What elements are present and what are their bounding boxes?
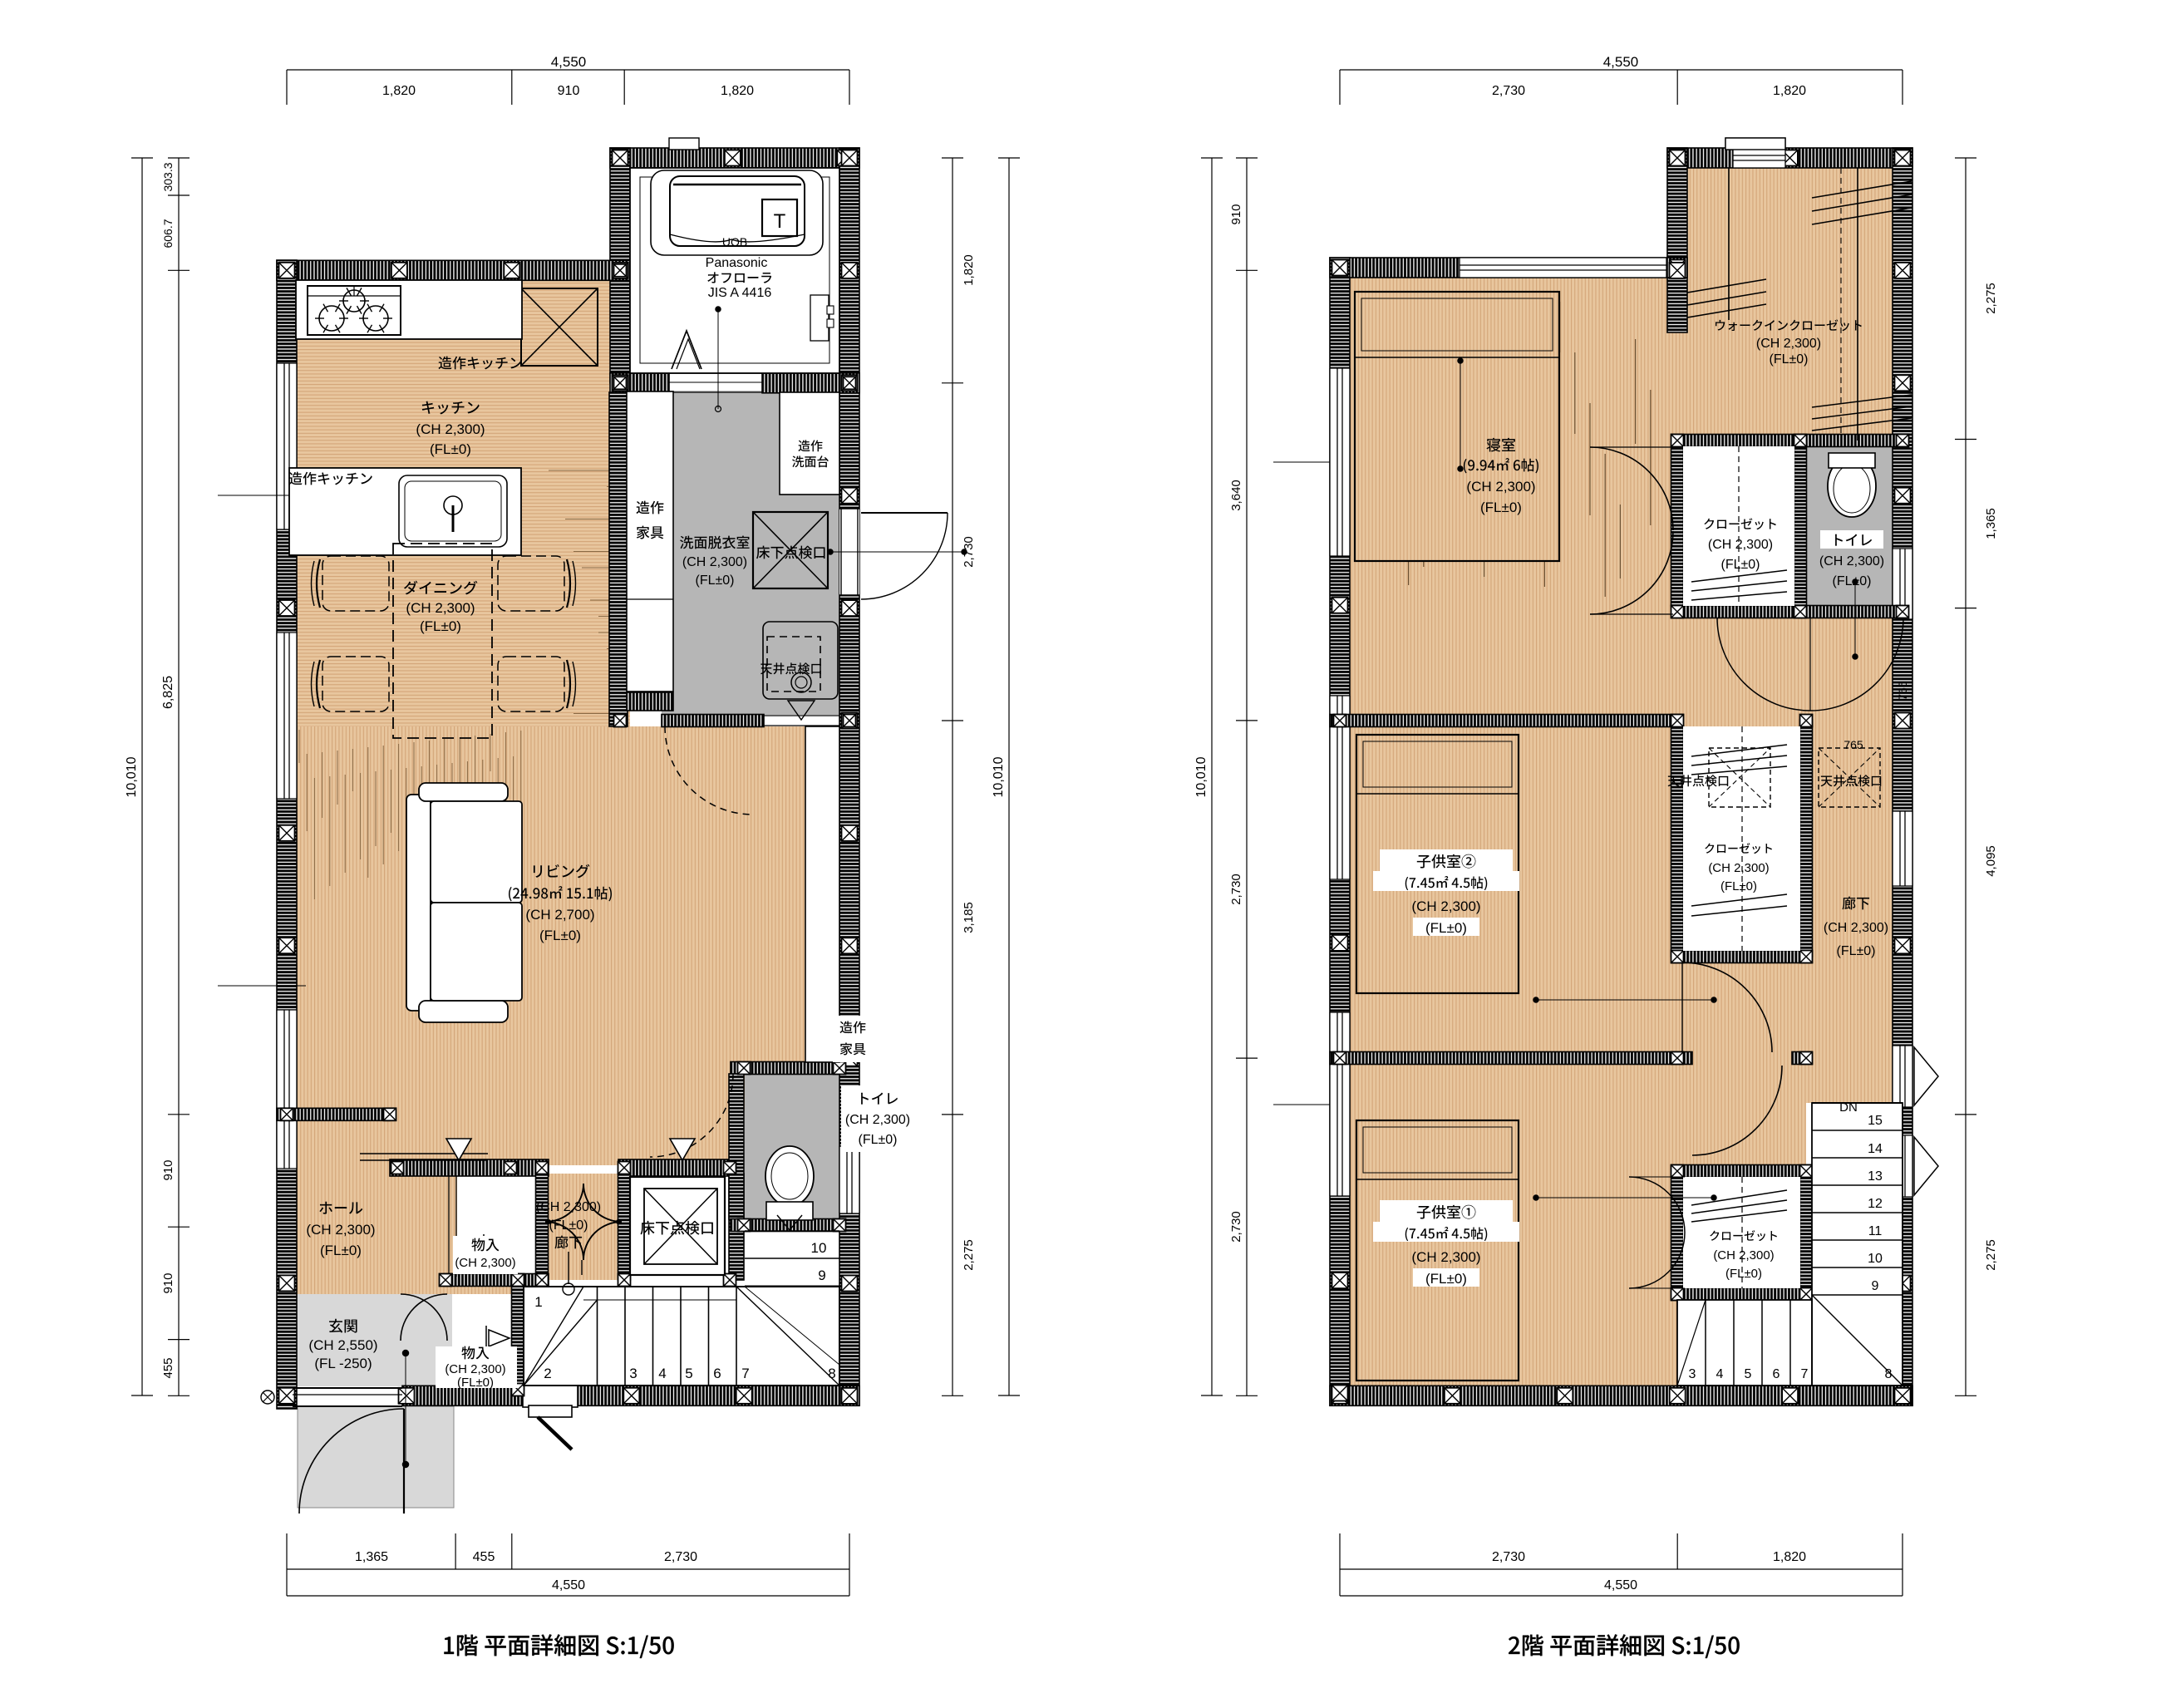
svg-text:Panasonic: Panasonic — [706, 256, 768, 270]
svg-text:(CH 2,300): (CH 2,300) — [406, 600, 475, 616]
svg-text:910: 910 — [558, 84, 580, 98]
svg-text:(FL±0): (FL±0) — [858, 1133, 897, 1147]
svg-text:(FL±0): (FL±0) — [1425, 920, 1467, 936]
svg-text:(FL±0): (FL±0) — [1720, 879, 1757, 893]
svg-text:(FL±0): (FL±0) — [539, 928, 581, 943]
svg-text:(CH 2,300): (CH 2,300) — [1713, 1248, 1774, 1263]
svg-text:765: 765 — [1843, 738, 1863, 751]
svg-text:910: 910 — [161, 1159, 175, 1180]
svg-text:4,550: 4,550 — [552, 1578, 585, 1592]
svg-text:9: 9 — [1872, 1279, 1879, 1293]
svg-text:1,365: 1,365 — [1984, 508, 1998, 539]
svg-text:(FL±0): (FL±0) — [1769, 352, 1808, 367]
svg-text:9: 9 — [818, 1267, 825, 1283]
svg-text:3: 3 — [629, 1366, 637, 1381]
svg-text:(CH 2,300): (CH 2,300) — [416, 421, 485, 437]
svg-text:1,820: 1,820 — [1773, 84, 1806, 98]
svg-text:1,820: 1,820 — [721, 84, 754, 98]
svg-text:4,550: 4,550 — [1604, 1578, 1637, 1592]
svg-text:10,010: 10,010 — [1194, 756, 1208, 797]
svg-text:606.7: 606.7 — [161, 219, 175, 248]
svg-text:2,275: 2,275 — [1984, 1239, 1998, 1271]
svg-text:(CH 2,300): (CH 2,300) — [1824, 921, 1888, 935]
svg-text:1,820: 1,820 — [962, 254, 976, 286]
svg-text:4: 4 — [1716, 1367, 1724, 1381]
svg-text:910: 910 — [1229, 204, 1243, 224]
svg-text:6: 6 — [713, 1366, 721, 1381]
svg-text:15: 15 — [1868, 1114, 1883, 1128]
svg-text:(CH 2,300): (CH 2,300) — [682, 555, 747, 569]
svg-text:1,365: 1,365 — [355, 1550, 388, 1564]
svg-text:(FL±0): (FL±0) — [1425, 1271, 1467, 1287]
svg-text:4,550: 4,550 — [1603, 54, 1639, 70]
svg-text:(CH 2,300): (CH 2,300) — [1708, 538, 1773, 552]
svg-text:(CH 2,300): (CH 2,300) — [536, 1200, 601, 1214]
svg-text:6: 6 — [1773, 1367, 1780, 1381]
svg-text:910: 910 — [161, 1272, 175, 1293]
svg-text:10: 10 — [1868, 1252, 1883, 1266]
svg-text:(CH 2,300): (CH 2,300) — [1819, 554, 1884, 569]
svg-text:(CH 2,300): (CH 2,300) — [1411, 1249, 1480, 1265]
svg-text:(FL±0): (FL±0) — [1832, 574, 1871, 588]
svg-text:3,185: 3,185 — [962, 902, 976, 933]
svg-text:1,820: 1,820 — [382, 84, 416, 98]
svg-text:(CH 2,300): (CH 2,300) — [1756, 337, 1821, 351]
svg-text:7: 7 — [741, 1366, 749, 1381]
svg-text:(FL±0): (FL±0) — [1480, 500, 1522, 515]
svg-text:3: 3 — [1689, 1367, 1696, 1381]
svg-text:5: 5 — [1745, 1367, 1752, 1381]
svg-text:(CH 2,700): (CH 2,700) — [525, 907, 594, 923]
svg-text:(FL±0): (FL±0) — [695, 573, 734, 588]
svg-text:2,730: 2,730 — [962, 536, 976, 568]
svg-text:10,010: 10,010 — [992, 756, 1006, 797]
svg-text:(FL±0): (FL±0) — [1720, 558, 1760, 572]
svg-text:765: 765 — [1896, 681, 1909, 701]
svg-text:12: 12 — [1868, 1197, 1883, 1211]
svg-text:8: 8 — [1885, 1367, 1893, 1381]
svg-text:(CH 2,300): (CH 2,300) — [845, 1113, 910, 1127]
svg-text:5: 5 — [685, 1366, 692, 1381]
svg-text:(FL±0): (FL±0) — [457, 1376, 494, 1390]
svg-text:7: 7 — [1801, 1367, 1809, 1381]
svg-text:2,730: 2,730 — [664, 1550, 697, 1564]
svg-text:8: 8 — [828, 1366, 835, 1381]
svg-text:(CH 2,300): (CH 2,300) — [1411, 898, 1480, 914]
svg-text:14: 14 — [1868, 1142, 1883, 1156]
svg-text:(FL±0): (FL±0) — [1725, 1267, 1762, 1281]
svg-text:UOB: UOB — [722, 235, 747, 249]
svg-text:(CH 2,300): (CH 2,300) — [445, 1362, 505, 1376]
svg-text:2,730: 2,730 — [1229, 874, 1243, 905]
svg-text:(CH 2,300): (CH 2,300) — [1708, 861, 1769, 875]
svg-text:(CH 2,300): (CH 2,300) — [306, 1222, 375, 1238]
svg-text:1,820: 1,820 — [1773, 1550, 1806, 1564]
svg-text:2,730: 2,730 — [1229, 1211, 1243, 1243]
svg-text:3,640: 3,640 — [1229, 480, 1243, 511]
svg-text:(FL±0): (FL±0) — [430, 441, 471, 457]
svg-text:2,730: 2,730 — [1492, 84, 1525, 98]
svg-text:455: 455 — [473, 1550, 495, 1564]
svg-text:4: 4 — [658, 1366, 666, 1381]
svg-text:(FL±0): (FL±0) — [420, 618, 461, 634]
svg-text:10,010: 10,010 — [125, 756, 139, 797]
svg-text:2,275: 2,275 — [962, 1239, 976, 1271]
svg-text:(FL±0): (FL±0) — [549, 1218, 588, 1233]
svg-text:10: 10 — [811, 1240, 827, 1256]
svg-text:11: 11 — [1868, 1224, 1883, 1238]
svg-text:(CH 2,550): (CH 2,550) — [308, 1337, 377, 1353]
svg-text:6,825: 6,825 — [161, 676, 175, 709]
svg-text:455: 455 — [161, 1357, 175, 1378]
svg-text:303.3: 303.3 — [161, 162, 175, 191]
svg-text:2,730: 2,730 — [1492, 1550, 1525, 1564]
svg-text:4,095: 4,095 — [1984, 845, 1998, 877]
svg-text:(FL±0): (FL±0) — [1836, 944, 1875, 958]
svg-text:JIS A 4416: JIS A 4416 — [708, 286, 772, 300]
svg-text:2,275: 2,275 — [1984, 283, 1998, 314]
svg-text:13: 13 — [1868, 1169, 1883, 1184]
svg-text:(FL±0): (FL±0) — [320, 1243, 362, 1258]
svg-text:(CH 2,300): (CH 2,300) — [1466, 479, 1535, 495]
svg-text:(CH 2,300): (CH 2,300) — [455, 1256, 515, 1270]
svg-text:T: T — [774, 210, 786, 233]
svg-text:2: 2 — [544, 1366, 551, 1381]
svg-text:1: 1 — [534, 1294, 542, 1310]
svg-text:4,550: 4,550 — [551, 54, 587, 70]
svg-text:(FL -250): (FL -250) — [314, 1356, 372, 1371]
